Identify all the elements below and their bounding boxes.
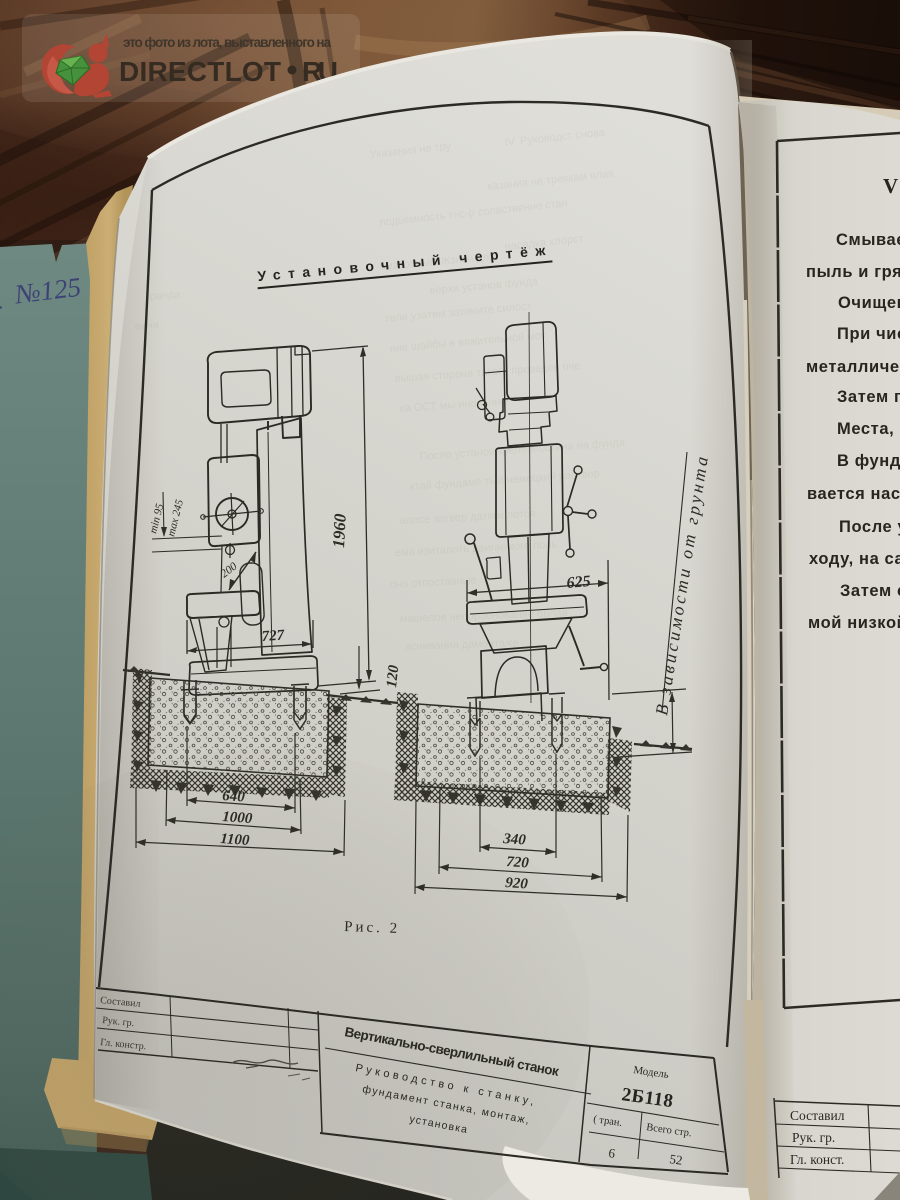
svg-text:340: 340: [502, 831, 527, 849]
svg-text:DIRECTLOT: DIRECTLOT: [119, 56, 281, 87]
svg-text:При чистке: При чистке: [837, 325, 900, 343]
svg-text:мой низкой: мой низкой: [808, 614, 900, 632]
svg-text:Очищенн: Очищенн: [838, 294, 900, 312]
svg-text:пыль и грязь: пыль и грязь: [806, 263, 900, 281]
svg-text:В фундам: В фундам: [837, 452, 900, 470]
svg-text:1000: 1000: [222, 809, 254, 827]
svg-text:120: 120: [384, 664, 402, 689]
svg-text:Рук. гр.: Рук. гр.: [792, 1130, 835, 1145]
svg-text:Рис. 2: Рис. 2: [344, 919, 401, 937]
svg-text:Места, по: Места, по: [837, 420, 900, 438]
svg-text:ходу, на само: ходу, на само: [809, 550, 900, 568]
svg-text:Гл. конст.: Гл. конст.: [790, 1152, 844, 1167]
svg-text:вается насто: вается насто: [807, 485, 900, 503]
svg-text:920: 920: [505, 875, 529, 893]
svg-text:Смывается: Смывается: [836, 231, 900, 249]
svg-text:1960: 1960: [329, 513, 350, 548]
svg-text:Затем ста: Затем ста: [840, 582, 900, 600]
svg-text:V: V: [883, 174, 898, 198]
svg-text:Затем про: Затем про: [837, 388, 900, 406]
svg-text:это фото из лота, выставленног: это фото из лота, выставленного на: [123, 35, 331, 50]
svg-text:640: 640: [222, 788, 246, 806]
svg-text:Составил: Составил: [790, 1108, 845, 1123]
svg-text:625: 625: [566, 573, 591, 592]
svg-text:После уст: После уст: [839, 518, 900, 536]
svg-text:1100: 1100: [220, 831, 251, 849]
svg-text:727: 727: [261, 627, 285, 645]
svg-text:металлические: металлические: [806, 358, 900, 376]
svg-text:720: 720: [506, 854, 530, 872]
svg-text:52: 52: [669, 1151, 684, 1168]
